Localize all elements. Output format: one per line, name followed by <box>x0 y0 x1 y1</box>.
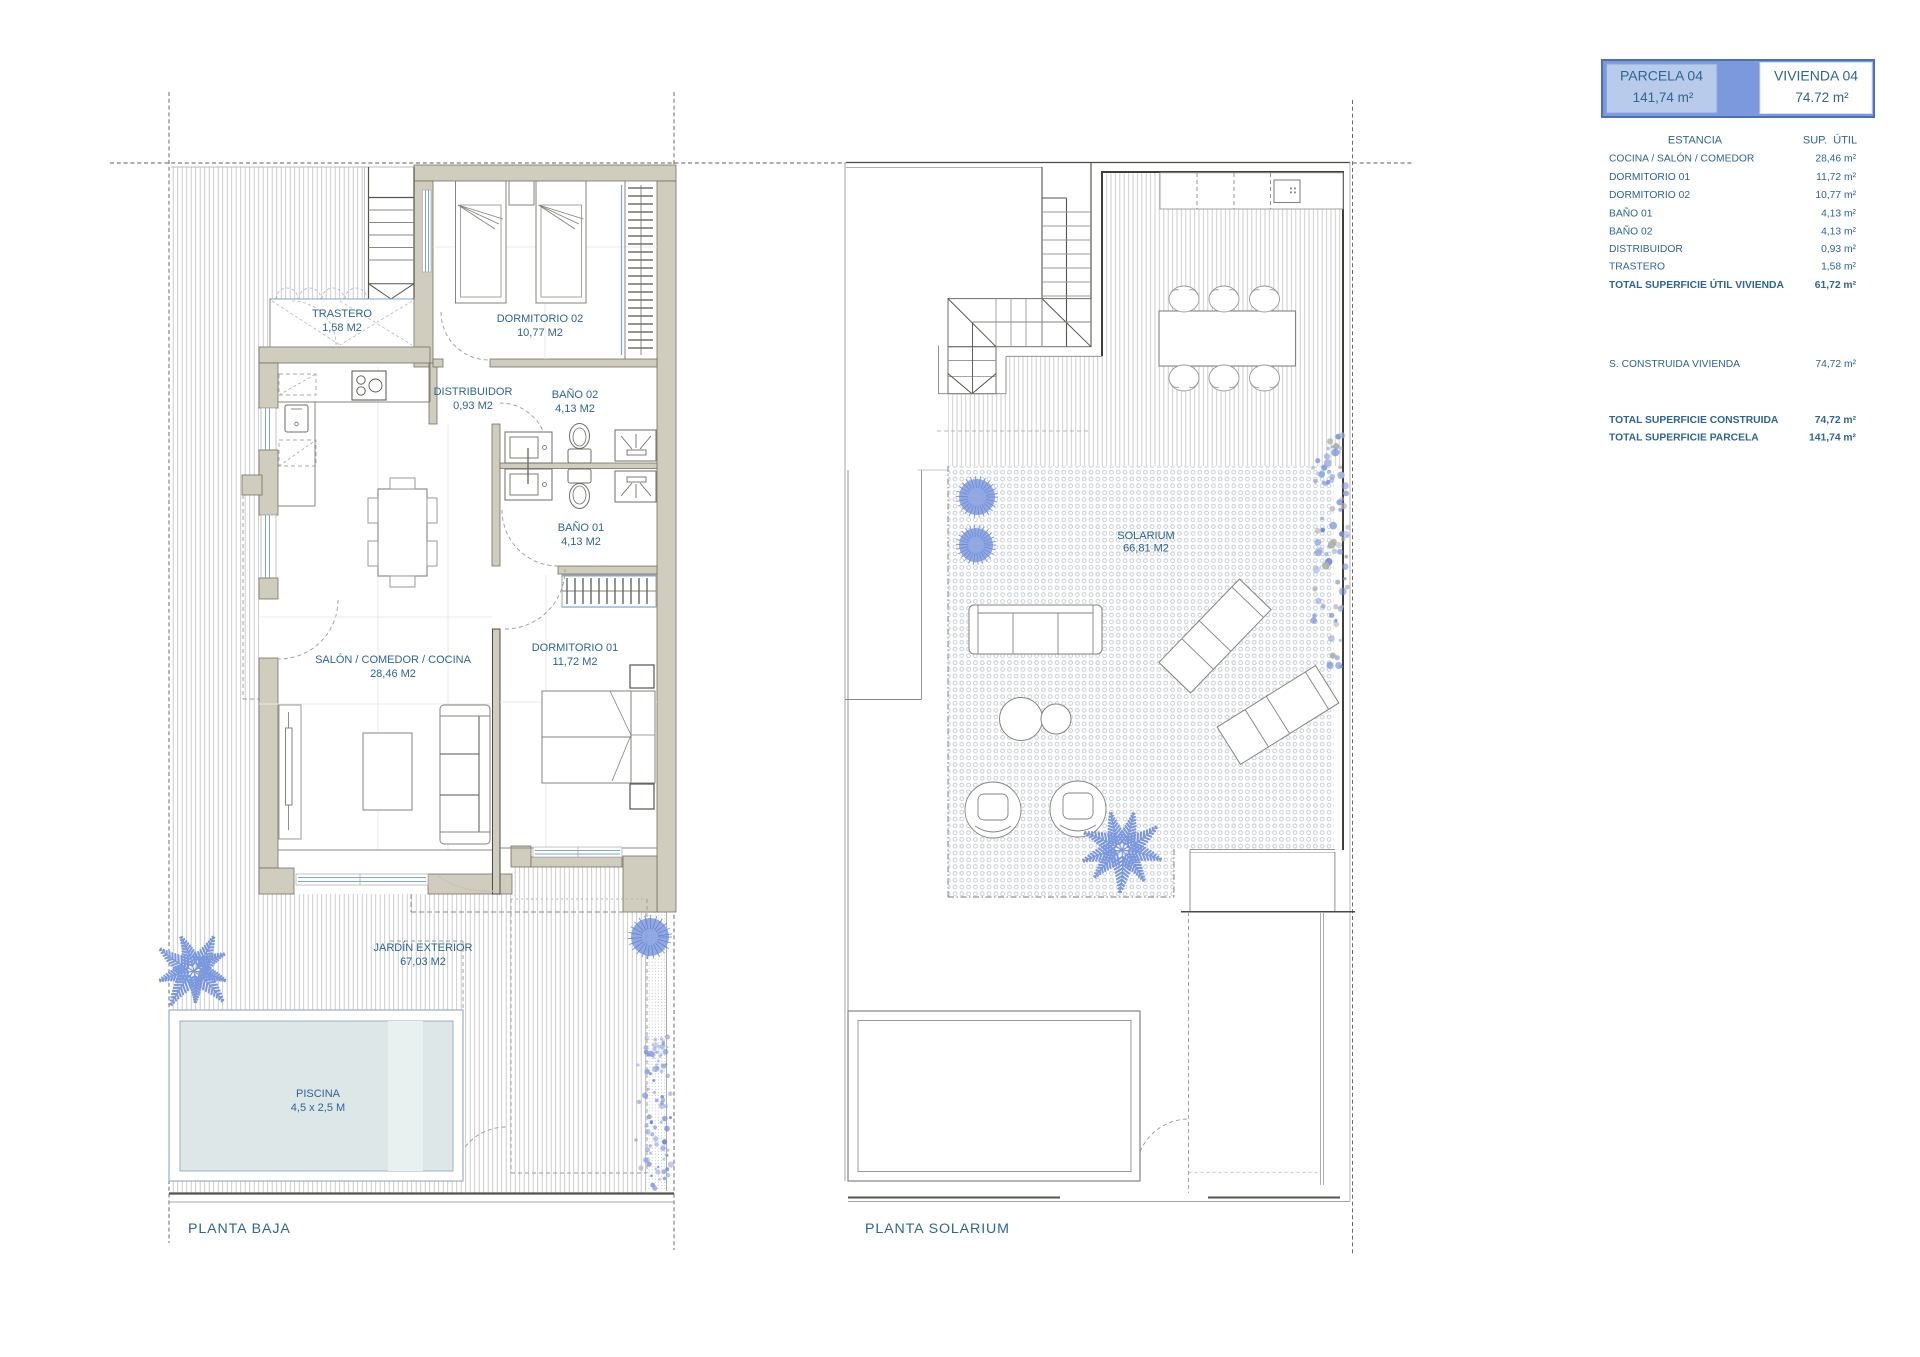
svg-text:PARCELA 04: PARCELA 04 <box>1620 68 1703 84</box>
svg-text:0,93 m²: 0,93 m² <box>1821 244 1856 255</box>
svg-text:74.72 m²: 74.72 m² <box>1795 90 1849 105</box>
svg-text:TOTAL SUPERFICIE PARCELA: TOTAL SUPERFICIE PARCELA <box>1609 433 1759 444</box>
svg-text:11,72 M2: 11,72 M2 <box>552 656 597 668</box>
svg-text:DISTRIBUIDOR: DISTRIBUIDOR <box>434 386 513 398</box>
svg-text:DORMITORIO 01: DORMITORIO 01 <box>1609 172 1690 183</box>
svg-text:DORMITORIO 02: DORMITORIO 02 <box>497 313 584 325</box>
svg-text:TRASTERO: TRASTERO <box>1609 262 1665 273</box>
svg-text:4,13 M2: 4,13 M2 <box>561 536 601 548</box>
svg-text:61,72 m²: 61,72 m² <box>1815 280 1857 291</box>
svg-text:PLANTA BAJA: PLANTA BAJA <box>188 1221 291 1237</box>
svg-text:141,74 m²: 141,74 m² <box>1633 90 1694 105</box>
svg-text:DORMITORIO 02: DORMITORIO 02 <box>1609 190 1690 201</box>
svg-text:TRASTERO: TRASTERO <box>312 308 372 320</box>
svg-text:COCINA / SALÓN / COMEDOR: COCINA / SALÓN / COMEDOR <box>1609 152 1754 165</box>
svg-text:DISTRIBUIDOR: DISTRIBUIDOR <box>1609 244 1683 255</box>
svg-text:VIVIENDA 04: VIVIENDA 04 <box>1774 68 1858 84</box>
svg-text:BAÑO 01: BAÑO 01 <box>558 521 604 534</box>
svg-text:1,58 m²: 1,58 m² <box>1821 262 1856 273</box>
svg-text:74,72 m²: 74,72 m² <box>1815 415 1857 426</box>
svg-text:0,93 M2: 0,93 M2 <box>453 400 493 412</box>
svg-text:SUP. ÚTIL: SUP. ÚTIL <box>1803 134 1857 147</box>
svg-text:10,77 m²: 10,77 m² <box>1815 190 1856 201</box>
svg-text:4,13 m²: 4,13 m² <box>1821 209 1856 220</box>
svg-text:4,5 x 2,5 M: 4,5 x 2,5 M <box>291 1102 345 1114</box>
svg-text:JARDÍN EXTERIOR: JARDÍN EXTERIOR <box>373 941 472 954</box>
svg-text:PLANTA SOLARIUM: PLANTA SOLARIUM <box>865 1221 1010 1237</box>
svg-text:11,72 m²: 11,72 m² <box>1816 172 1856 183</box>
svg-text:BAÑO 01: BAÑO 01 <box>1609 207 1653 220</box>
svg-text:1,58 M2: 1,58 M2 <box>322 322 362 334</box>
svg-text:66,81 M2: 66,81 M2 <box>1123 543 1169 555</box>
svg-text:141,74 m²: 141,74 m² <box>1809 433 1857 444</box>
svg-text:SOLARIUM: SOLARIUM <box>1117 530 1174 542</box>
svg-text:TOTAL SUPERFICIE ÚTIL VIVIENDA: TOTAL SUPERFICIE ÚTIL VIVIENDA <box>1609 278 1784 291</box>
svg-text:28,46 m²: 28,46 m² <box>1815 154 1856 165</box>
svg-text:SALÓN / COMEDOR / COCINA: SALÓN / COMEDOR / COCINA <box>315 653 472 666</box>
svg-text:28,46 M2: 28,46 M2 <box>370 668 416 680</box>
svg-text:BAÑO 02: BAÑO 02 <box>552 388 598 401</box>
svg-text:DORMITORIO 01: DORMITORIO 01 <box>532 642 619 654</box>
svg-text:TOTAL SUPERFICIE CONSTRUIDA: TOTAL SUPERFICIE CONSTRUIDA <box>1609 415 1779 426</box>
svg-text:74,72 m²: 74,72 m² <box>1815 359 1856 370</box>
svg-text:S. CONSTRUIDA VIVIENDA: S. CONSTRUIDA VIVIENDA <box>1609 359 1740 370</box>
svg-text:10,77 M2: 10,77 M2 <box>517 327 563 339</box>
svg-text:PISCINA: PISCINA <box>296 1088 341 1100</box>
svg-text:67,03 M2: 67,03 M2 <box>400 956 446 968</box>
svg-text:ESTANCIA: ESTANCIA <box>1668 135 1723 147</box>
svg-text:4,13 m²: 4,13 m² <box>1821 227 1856 238</box>
svg-text:BAÑO 02: BAÑO 02 <box>1609 225 1653 238</box>
svg-text:4,13 M2: 4,13 M2 <box>555 403 595 415</box>
